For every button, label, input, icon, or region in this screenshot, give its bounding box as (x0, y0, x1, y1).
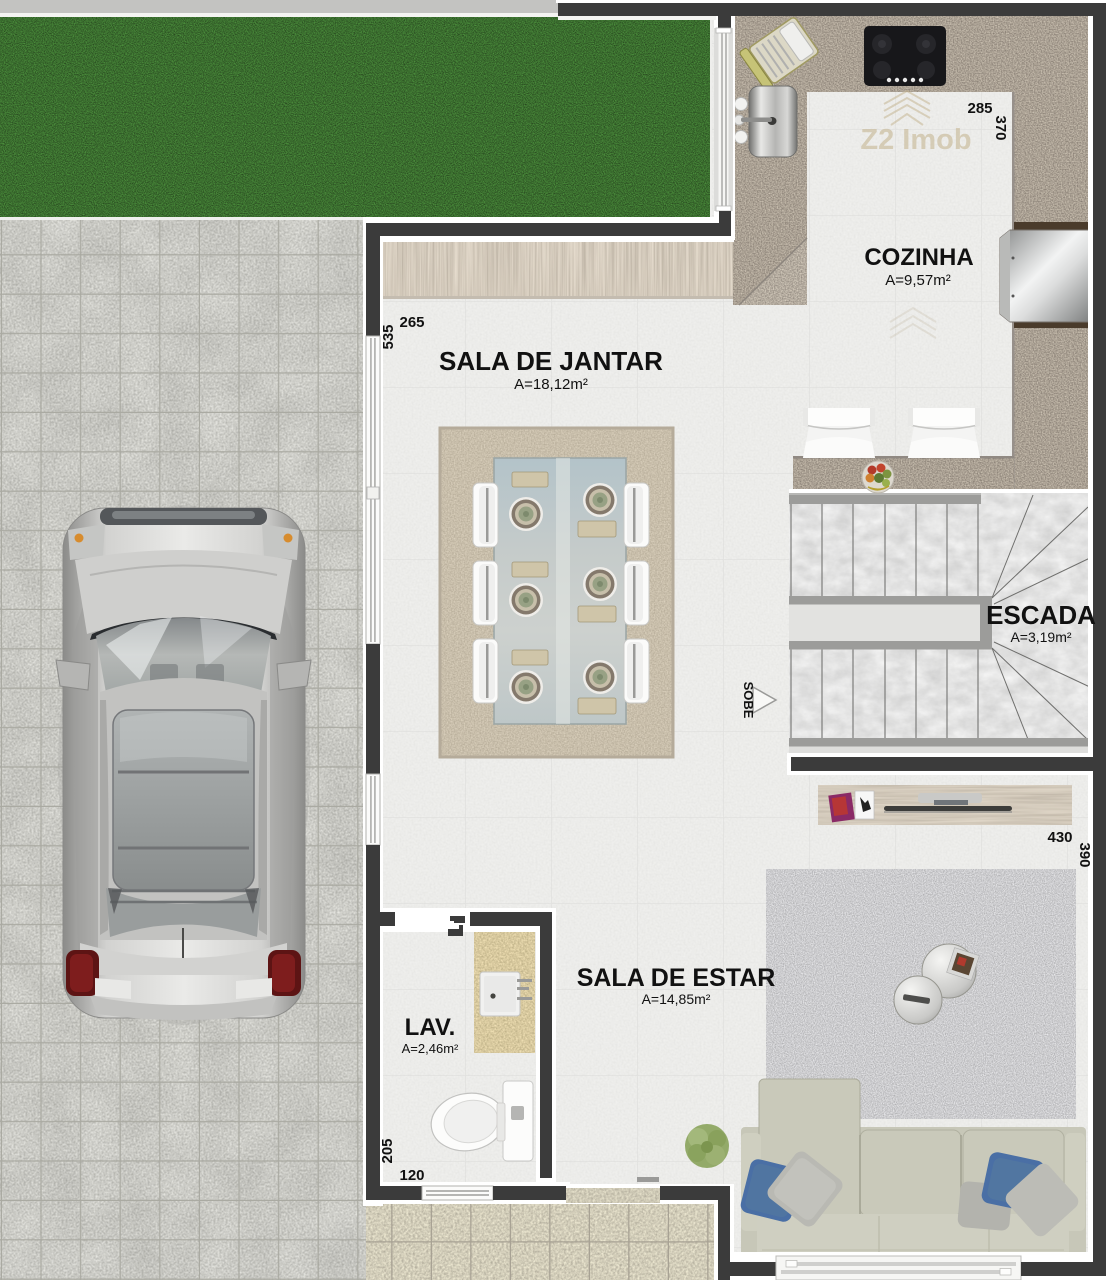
svg-text:SALA DE JANTAR: SALA DE JANTAR (439, 346, 663, 376)
svg-text:A=2,46m²: A=2,46m² (402, 1041, 459, 1056)
svg-text:LAV.: LAV. (405, 1014, 456, 1041)
svg-text:SOBE: SOBE (741, 682, 756, 719)
svg-text:A=3,19m²: A=3,19m² (1010, 629, 1071, 645)
svg-text:120: 120 (399, 1167, 424, 1184)
svg-text:COZINHA: COZINHA (864, 244, 973, 271)
svg-text:535: 535 (380, 324, 397, 349)
svg-text:285: 285 (967, 100, 992, 117)
svg-text:390: 390 (1076, 842, 1093, 867)
svg-text:265: 265 (399, 314, 424, 331)
svg-text:A=9,57m²: A=9,57m² (885, 272, 950, 289)
svg-text:430: 430 (1047, 829, 1072, 846)
svg-text:Z2 Imob: Z2 Imob (860, 124, 971, 156)
svg-text:370: 370 (992, 115, 1009, 140)
svg-text:A=18,12m²: A=18,12m² (514, 376, 588, 393)
svg-text:205: 205 (379, 1138, 396, 1163)
svg-text:A=14,85m²: A=14,85m² (642, 991, 711, 1007)
svg-text:ESCADA: ESCADA (986, 600, 1096, 630)
svg-text:SALA DE ESTAR: SALA DE ESTAR (577, 964, 776, 992)
